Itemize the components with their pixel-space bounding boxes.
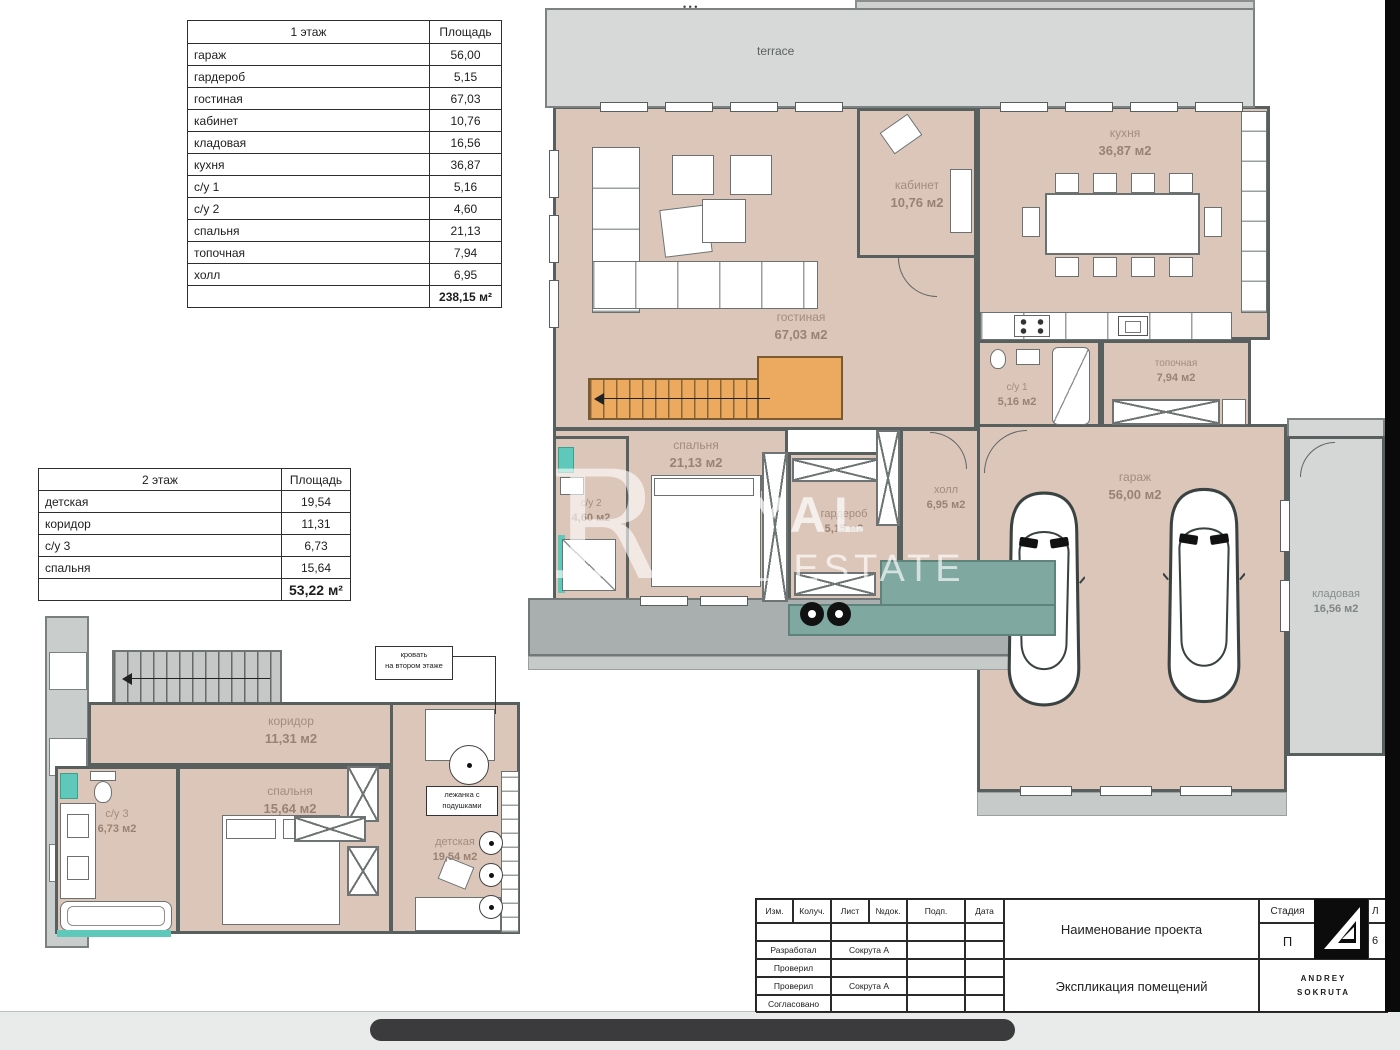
tb-sign-cell (907, 959, 965, 977)
stage-value: П (1259, 923, 1316, 959)
sink-icon (1118, 316, 1148, 336)
room-name-cell: гараж (188, 44, 430, 66)
project-title: Наименование проекта (1004, 899, 1259, 959)
window (1000, 102, 1048, 112)
window (1280, 500, 1290, 552)
table-header-row: 2 этаж Площадь (39, 469, 351, 491)
bed (651, 475, 761, 587)
tb-row-value (831, 923, 907, 941)
armchair (730, 155, 772, 195)
tb-row-label: Согласовано (756, 995, 831, 1013)
shrub-icon (827, 602, 851, 626)
tb-date-cell (965, 923, 1004, 941)
chair (1022, 207, 1040, 237)
floor1-area-table: 1 этаж Площадь гараж56,00 гардероб5,15 г… (187, 20, 502, 308)
bathtub-icon (1052, 347, 1090, 425)
room-name-cell: коридор (39, 513, 282, 535)
room-label-bedroom2: спальня 15,64 м2 (210, 783, 370, 818)
area-cell: 19,54 (282, 491, 351, 513)
toilet-tank (90, 771, 116, 781)
room-name-cell: холл (188, 264, 430, 286)
tb-col-header: Дата (965, 899, 1004, 923)
wardrobe-shelf-box (347, 846, 379, 896)
area-cell: 21,13 (430, 220, 502, 242)
table-row: гостиная67,03 (188, 88, 502, 110)
logo-text-line2: SOKRUTA (1297, 986, 1350, 1000)
bathtub-inner (67, 906, 165, 926)
stair-arrow-icon (594, 393, 604, 405)
room-label-garage: гараж 56,00 м2 (1055, 469, 1215, 504)
area-cell: 6,95 (430, 264, 502, 286)
toilet-icon (94, 781, 112, 803)
terrace-area: terrace (545, 8, 1255, 108)
chair (1131, 257, 1155, 277)
room-name-cell: с/у 2 (188, 198, 430, 220)
table-row: гардероб5,15 (188, 66, 502, 88)
window (795, 102, 843, 112)
room-label-wc3: с/у 3 6,73 м2 (72, 807, 162, 838)
walkway-edge (528, 656, 1056, 670)
window (730, 102, 778, 112)
horizontal-scrollbar-handle[interactable] (370, 1019, 1015, 1041)
chair (1169, 257, 1193, 277)
toilet-icon (990, 349, 1006, 369)
area-cell: 4,60 (430, 198, 502, 220)
room-label-hall: холл 6,95 м2 (903, 483, 989, 514)
room-label-storage: кладовая 16,56 м2 (1290, 587, 1382, 618)
staircase2-run (112, 650, 282, 708)
title-block: Изм. Колуч. Лист №док. Подп. Дата Разраб… (755, 898, 1387, 1012)
shower-icon (562, 539, 616, 591)
sofa-horizontal (592, 261, 818, 309)
office-chair (880, 114, 923, 155)
table-row: с/у 36,73 (39, 535, 351, 557)
window (600, 102, 648, 112)
table-row: спальня21,13 (188, 220, 502, 242)
table-row: с/у 24,60 (188, 198, 502, 220)
terrace-label: terrace (757, 44, 794, 58)
room-label-bedroom1: спальня 21,13 м2 (616, 437, 776, 472)
tb-date-cell (965, 977, 1004, 995)
window (700, 596, 748, 606)
floor2-title: 2 этаж (39, 469, 282, 491)
room-name-cell: кабинет (188, 110, 430, 132)
window (549, 215, 559, 263)
dining-table (1045, 193, 1200, 255)
staircase-run (588, 378, 784, 420)
room-kitchen: кухня 36,87 м2 (977, 106, 1270, 340)
kitchen-cabinets-column (1241, 111, 1267, 313)
room-kids: детская 19,54 м2 (390, 702, 520, 934)
storage-vestibule (1287, 418, 1385, 438)
pillow (654, 478, 754, 496)
round-chair-icon (449, 745, 489, 785)
table-row: кабинет10,76 (188, 110, 502, 132)
tb-date-cell (965, 995, 1004, 1013)
room-wc3: с/у 3 6,73 м2 (55, 766, 179, 934)
floor-plan-sheet: 1 этаж Площадь гараж56,00 гардероб5,15 г… (0, 0, 1400, 1050)
coffee-table (702, 199, 746, 243)
tb-sign-cell (907, 923, 965, 941)
window (549, 150, 559, 198)
area-header: Площадь (282, 469, 351, 491)
washbasin-icon (560, 477, 584, 495)
table-row: топочная7,94 (188, 242, 502, 264)
tb-col-header: Подп. (907, 899, 965, 923)
bathtub-icon (60, 901, 172, 931)
room-storage: кладовая 16,56 м2 (1287, 436, 1385, 756)
author-logo-cell: ANDREY SOKRUTA (1259, 959, 1388, 1013)
room-label-corridor: коридор 11,31 м2 (201, 713, 381, 748)
callout-connector (495, 656, 496, 714)
teal-fixture (60, 773, 78, 799)
tb-row-label: Проверил (756, 977, 831, 995)
table-total-row: 53,22 м² (39, 579, 351, 601)
room-boiler: топочная 7,94 м2 (1101, 340, 1251, 430)
bench-callout-line2: подушками (442, 801, 481, 810)
room-name-cell: кладовая (188, 132, 430, 154)
sink-basin (1125, 321, 1141, 333)
staircase-landing (757, 356, 843, 420)
area-cell: 5,16 (430, 176, 502, 198)
stair2-arrow-icon (122, 673, 132, 685)
washbasin-icon (1016, 349, 1040, 365)
tb-sign-cell (907, 941, 965, 959)
bench-callout-line1: лежанка с (444, 790, 479, 799)
tb-col-header: Колуч. (793, 899, 831, 923)
window (1280, 580, 1290, 632)
entry-porch (880, 560, 1056, 608)
area-cell: 6,73 (282, 535, 351, 557)
armchair (672, 155, 714, 195)
tb-col-header: №док. (869, 899, 907, 923)
room-label-kabinet: кабинет 10,76 м2 (860, 177, 974, 212)
table-row: коридор11,31 (39, 513, 351, 535)
table-row: детская19,54 (39, 491, 351, 513)
car-icon (1163, 483, 1245, 708)
tb-sign-cell (907, 995, 965, 1013)
total-area-cell: 238,15 м² (430, 286, 502, 308)
area-cell: 16,56 (430, 132, 502, 154)
table-row: кладовая16,56 (188, 132, 502, 154)
area-cell: 7,94 (430, 242, 502, 264)
stool-icon (479, 895, 503, 919)
tb-col-header: Изм. (756, 899, 793, 923)
room-name-cell: кухня (188, 154, 430, 176)
boiler-unit (1222, 399, 1246, 425)
wardrobe-shelf-box (794, 572, 876, 596)
right-black-strip (1385, 0, 1400, 1012)
floor2-area-table: 2 этаж Площадь детская19,54 коридор11,31… (38, 468, 351, 601)
area-cell: 36,87 (430, 154, 502, 176)
room-kabinet: кабинет 10,76 м2 (857, 108, 977, 258)
chair (1055, 257, 1079, 277)
wardrobe-shelf-box (792, 458, 878, 482)
area-cell: 5,15 (430, 66, 502, 88)
area-cell: 11,31 (282, 513, 351, 535)
tb-row-label: Проверил (756, 959, 831, 977)
window (1100, 786, 1152, 796)
terrace-dots-icon: • • • (683, 2, 697, 12)
area-cell: 67,03 (430, 88, 502, 110)
room-name-cell: гардероб (188, 66, 430, 88)
room-wc1: с/у 1 5,16 м2 (977, 340, 1101, 430)
floor1-title: 1 этаж (188, 21, 430, 44)
area-cell: 15,64 (282, 557, 351, 579)
tb-row-value: Сокрута А (831, 941, 907, 959)
room-label-wc2: с/у 2 4,60 м2 (556, 497, 626, 526)
tb-date-cell (965, 959, 1004, 977)
room-name-cell: с/у 1 (188, 176, 430, 198)
doc-title: Экспликация помещений (1004, 959, 1259, 1013)
tb-sign-cell (907, 977, 965, 995)
shrub-icon (800, 602, 824, 626)
wardrobe-shelf-box (294, 816, 366, 842)
chair (1055, 173, 1079, 193)
window (1130, 102, 1178, 112)
tb-row-label (756, 923, 831, 941)
teal-fixture (558, 447, 574, 473)
bed-callout: кровать на втором этаже (375, 646, 453, 680)
logo-triangle-icon (1314, 899, 1368, 959)
teal-strip (57, 930, 171, 937)
tb-row-value: Сокрута А (831, 977, 907, 995)
table-row: спальня15,64 (39, 557, 351, 579)
table-total-row: 238,15 м² (188, 286, 502, 308)
tb-col-header: Лист (831, 899, 869, 923)
empty-cell (39, 579, 282, 601)
stove-icon (1014, 315, 1050, 337)
area-cell: 10,76 (430, 110, 502, 132)
room-name-cell: спальня (39, 557, 282, 579)
window (1195, 102, 1243, 112)
room-label-wardrobe: гардероб 5,15 м2 (791, 507, 897, 538)
room-label-living: гостиная 67,03 м2 (721, 309, 881, 344)
chair (1093, 257, 1117, 277)
window (665, 102, 713, 112)
window (640, 596, 688, 606)
window (1020, 786, 1072, 796)
room-name-cell: гостиная (188, 88, 430, 110)
callout-connector (453, 656, 495, 657)
window (549, 280, 559, 328)
boiler-equipment-box (1112, 399, 1220, 425)
bed-callout-line1: кровать (401, 650, 428, 659)
total-area-cell: 53,22 м² (282, 579, 351, 601)
tb-row-value (831, 959, 907, 977)
table-row: холл6,95 (188, 264, 502, 286)
room-name-cell: с/у 3 (39, 535, 282, 557)
logo-box (1314, 899, 1368, 959)
bench-callout: лежанка с подушками (426, 786, 498, 816)
room-label-kitchen: кухня 36,87 м2 (1040, 125, 1210, 160)
chair (1204, 207, 1222, 237)
table-row: кухня36,87 (188, 154, 502, 176)
room-name-cell: топочная (188, 242, 430, 264)
area-header: Площадь (430, 21, 502, 44)
pillow (226, 819, 276, 839)
window (49, 652, 87, 690)
chair (1169, 173, 1193, 193)
stair2-direction-line (132, 678, 270, 679)
table-header-row: 1 этаж Площадь (188, 21, 502, 44)
room-label-wc1: с/у 1 5,16 м2 (982, 381, 1052, 410)
chair (1093, 173, 1117, 193)
tb-row-label: Разработал (756, 941, 831, 959)
room-name-cell: спальня (188, 220, 430, 242)
stool-icon (479, 863, 503, 887)
table-row: с/у 15,16 (188, 176, 502, 198)
logo-text-line1: ANDREY (1301, 972, 1347, 986)
window (1180, 786, 1232, 796)
sink-icon (67, 856, 89, 880)
stair-direction-line (604, 398, 770, 399)
tb-date-cell (965, 941, 1004, 959)
bed-callout-line2: на втором этаже (385, 661, 443, 670)
empty-cell (188, 286, 430, 308)
table-row: гараж56,00 (188, 44, 502, 66)
room-label-boiler: топочная 7,94 м2 (1104, 357, 1248, 386)
room-name-cell: детская (39, 491, 282, 513)
wardrobe-shelf-box (762, 452, 788, 602)
stage-header: Стадия (1259, 899, 1316, 923)
room-label-kids: детская 19,54 м2 (393, 835, 517, 866)
tb-row-value (831, 995, 907, 1013)
area-cell: 56,00 (430, 44, 502, 66)
chair (1131, 173, 1155, 193)
window (1065, 102, 1113, 112)
